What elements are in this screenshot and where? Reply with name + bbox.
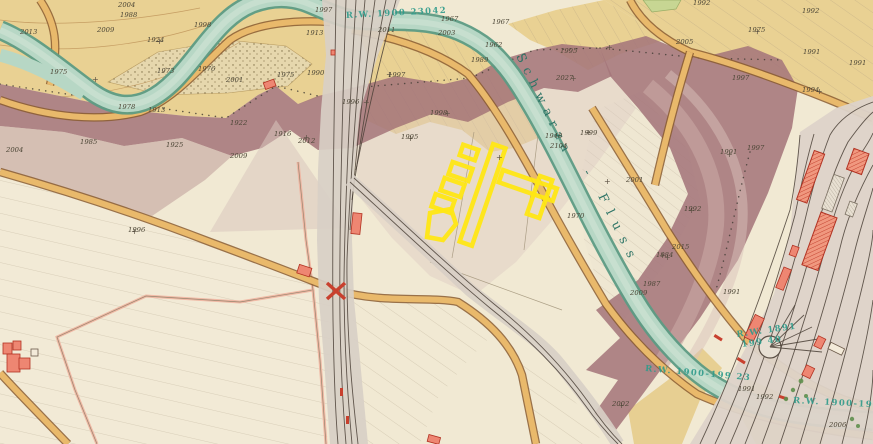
elevation-number: 2004 bbox=[117, 1, 135, 9]
elevation-number: 2013 bbox=[19, 28, 37, 36]
bridge-mark bbox=[340, 388, 343, 396]
survey-cross-icon: + bbox=[496, 153, 503, 162]
elevation-number: 2012 bbox=[297, 137, 315, 145]
elevation-number: 2001 bbox=[225, 76, 243, 84]
elevation-number: 2015 bbox=[671, 243, 689, 251]
elevation-number: 2003 bbox=[437, 29, 455, 37]
elevation-number: 1962 bbox=[485, 41, 502, 49]
elevation-number: 2104 bbox=[549, 142, 567, 150]
farm-building bbox=[3, 343, 12, 354]
elevation-number: 1992 bbox=[802, 7, 819, 15]
elevation-number: 1998 bbox=[430, 109, 448, 117]
elevation-number: 1992 bbox=[693, 0, 710, 7]
elevation-number: 1922 bbox=[230, 119, 247, 127]
survey-cross-icon: + bbox=[363, 98, 370, 107]
elevation-number: 1984 bbox=[656, 251, 673, 259]
elevation-number: 1996 bbox=[128, 226, 146, 234]
elevation-number: 1975 bbox=[50, 68, 67, 76]
elevation-number: 2011 bbox=[377, 26, 395, 34]
elevation-number: 1996 bbox=[342, 98, 360, 106]
elevation-number: 1975 bbox=[748, 26, 765, 34]
elevation-number: 1997 bbox=[315, 6, 333, 14]
elevation-number: 1991 bbox=[803, 48, 820, 56]
elevation-number: 1999 bbox=[580, 129, 598, 137]
elevation-number: 1948 bbox=[545, 132, 563, 140]
survey-cross-icon: + bbox=[604, 177, 611, 186]
elevation-number: 1967 bbox=[492, 18, 510, 26]
elevation-number: 1925 bbox=[166, 141, 183, 149]
elevation-number: 1992 bbox=[684, 205, 701, 213]
elevation-number: 1998 bbox=[194, 21, 212, 29]
elevation-number: 1989 bbox=[471, 56, 489, 64]
elevation-number: 1916 bbox=[274, 130, 292, 138]
elevation-number: 2027 bbox=[555, 74, 574, 82]
elevation-number: 2009 bbox=[629, 289, 648, 297]
elevation-number: 1975 bbox=[277, 71, 294, 79]
elevation-number: 1988 bbox=[120, 11, 138, 19]
elevation-number: 1967 bbox=[441, 15, 459, 23]
elevation-number: 1985 bbox=[80, 138, 97, 146]
elevation-number: 2009 bbox=[229, 152, 248, 160]
elevation-number: 1970 bbox=[567, 212, 585, 220]
elevation-number: 1997 bbox=[747, 144, 765, 152]
station-building bbox=[351, 213, 362, 235]
map-canvas: Schwarza - Fluss R.W. 1900 23042R.W. 189… bbox=[0, 0, 873, 444]
elevation-number: 2004 bbox=[5, 146, 23, 154]
elevation-number: 1978 bbox=[118, 103, 136, 111]
survey-cross-icon: + bbox=[92, 75, 99, 84]
elevation-number: 2009 bbox=[96, 26, 115, 34]
elevation-number: 1994 bbox=[802, 86, 819, 94]
elevation-number: 1995 bbox=[560, 47, 577, 55]
elevation-number: 2005 bbox=[675, 38, 693, 46]
elevation-number: 1973 bbox=[157, 67, 174, 75]
elevation-number: 1987 bbox=[643, 280, 661, 288]
elevation-number: 1991 bbox=[723, 288, 740, 296]
map-viewport: Schwarza - Fluss R.W. 1900 23042R.W. 189… bbox=[0, 0, 873, 444]
bridge-mark bbox=[346, 416, 349, 424]
elevation-number: 1991 bbox=[738, 385, 755, 393]
elevation-number: 1991 bbox=[720, 148, 737, 156]
elevation-number: 1992 bbox=[756, 393, 773, 401]
elevation-number: 1991 bbox=[849, 59, 866, 67]
elevation-number: 1990 bbox=[307, 69, 325, 77]
elevation-number: 2001 bbox=[625, 176, 643, 184]
elevation-number: 2006 bbox=[828, 421, 847, 429]
elevation-number: 1976 bbox=[198, 65, 216, 73]
elevation-number: 1913 bbox=[306, 29, 323, 37]
elevation-number: 2002 bbox=[611, 400, 629, 408]
elevation-number: 1997 bbox=[732, 74, 750, 82]
elevation-number: 1997 bbox=[388, 71, 406, 79]
elevation-number: 1913 bbox=[148, 106, 165, 114]
survey-cross-icon: + bbox=[606, 43, 613, 52]
elevation-number: 1995 bbox=[401, 133, 418, 141]
elevation-number: 1924 bbox=[147, 36, 164, 44]
